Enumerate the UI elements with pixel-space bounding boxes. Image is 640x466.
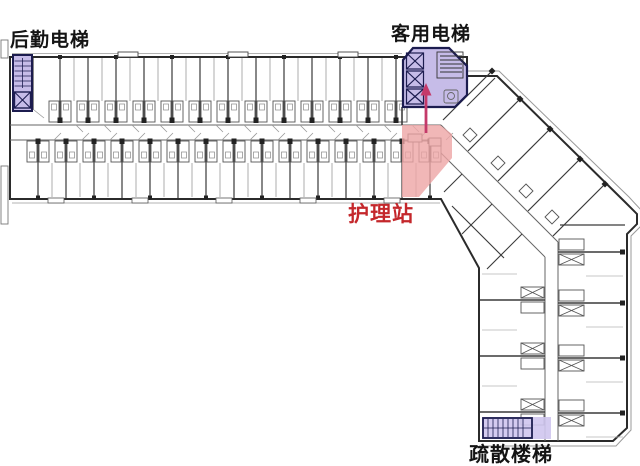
column-tick — [620, 301, 625, 306]
grid-marker — [1, 166, 8, 224]
column-tick — [620, 356, 625, 361]
wall-block — [288, 139, 293, 145]
bathroom-pod — [195, 141, 205, 162]
facade-bump — [216, 198, 232, 203]
grid-marker — [1, 40, 8, 58]
column-tick — [36, 196, 40, 200]
bathroom-pod — [521, 302, 544, 313]
wall-block — [260, 139, 265, 145]
bathroom-pod — [251, 141, 261, 162]
bathroom-pod — [139, 141, 149, 162]
wall-block — [394, 118, 399, 124]
wall-block — [338, 118, 343, 124]
service-elevator-label: 后勤电梯 — [10, 28, 90, 51]
bathroom-pod — [55, 141, 65, 162]
wall-block — [232, 139, 237, 145]
facade-bump — [118, 52, 138, 57]
bathroom-pod — [521, 358, 544, 369]
column-tick — [372, 196, 376, 200]
facade-bump — [48, 198, 64, 203]
guest-elevator-core — [403, 48, 467, 107]
bathroom-pod — [319, 141, 329, 162]
bathroom-pod — [307, 141, 317, 162]
column-tick — [394, 55, 398, 59]
wall-block — [226, 118, 231, 124]
column-tick — [316, 196, 320, 200]
column-tick — [260, 196, 264, 200]
bathroom-pod — [167, 141, 177, 162]
wall-block — [114, 118, 119, 124]
bathroom-pod — [391, 141, 401, 162]
facade-bump — [228, 52, 248, 57]
bathroom-pod — [559, 239, 584, 250]
guest-elevator-label: 客用电梯 — [391, 22, 471, 45]
column-tick — [170, 55, 174, 59]
bathroom-pod — [559, 400, 584, 411]
bathroom-pod — [95, 141, 105, 162]
facade-bump — [132, 198, 148, 203]
column-tick — [282, 55, 286, 59]
wall-block — [282, 118, 287, 124]
floor-plan-svg: 后勤电梯 客用电梯 护理站 疏散楼梯 — [0, 0, 640, 466]
column-tick — [620, 411, 625, 416]
bathroom-pod — [83, 141, 93, 162]
bathroom-pod — [347, 141, 357, 162]
bathroom-pod — [335, 141, 345, 162]
wall-block — [316, 139, 321, 145]
bathroom-pod — [123, 141, 133, 162]
floor-plan-image: 后勤电梯 客用电梯 护理站 疏散楼梯 — [0, 0, 640, 466]
wall-block — [36, 139, 41, 145]
wall-block — [148, 139, 153, 145]
wall-block — [64, 139, 69, 145]
column-tick — [620, 250, 625, 255]
bathroom-pod — [235, 141, 245, 162]
bathroom-pod — [263, 141, 273, 162]
wall-block — [254, 118, 259, 124]
evacuation-stair-area — [482, 417, 551, 439]
bathroom-pod — [559, 290, 584, 301]
wall-block — [198, 118, 203, 124]
wall-block — [366, 118, 371, 124]
wall-block — [120, 139, 125, 145]
bathroom-pod — [223, 141, 233, 162]
wall-block — [86, 118, 91, 124]
bathroom-pod — [207, 141, 217, 162]
wall-block — [170, 118, 175, 124]
wall-block — [372, 139, 377, 145]
bathroom-pod — [279, 141, 289, 162]
bathroom-pod — [291, 141, 301, 162]
bathroom-pod — [559, 345, 584, 356]
bathroom-pod — [39, 141, 49, 162]
bathroom-pod — [27, 141, 37, 162]
bathroom-pod — [179, 141, 189, 162]
wall-block — [58, 118, 63, 124]
bathroom-pod — [375, 141, 385, 162]
evacuation-stair-label: 疏散楼梯 — [469, 442, 553, 466]
column-tick — [148, 196, 152, 200]
facade-bump — [300, 198, 316, 203]
wall-block — [142, 118, 147, 124]
column-tick — [92, 196, 96, 200]
wall-block — [176, 139, 181, 145]
nursing-station-label: 护理站 — [348, 202, 414, 226]
column-tick — [114, 55, 118, 59]
wall-block — [310, 118, 315, 124]
bathroom-pod — [111, 141, 121, 162]
wall-block — [92, 139, 97, 145]
column-tick — [204, 196, 208, 200]
column-tick — [58, 55, 62, 59]
facade-bump — [338, 52, 358, 57]
building-outer-wall — [10, 57, 637, 441]
service-elevator-core — [13, 55, 32, 111]
bathroom-pod — [67, 141, 77, 162]
bathroom-pod — [151, 141, 161, 162]
wall-block — [344, 139, 349, 145]
column-tick — [428, 196, 432, 200]
bathroom-pod — [363, 141, 373, 162]
wall-block — [204, 139, 209, 145]
